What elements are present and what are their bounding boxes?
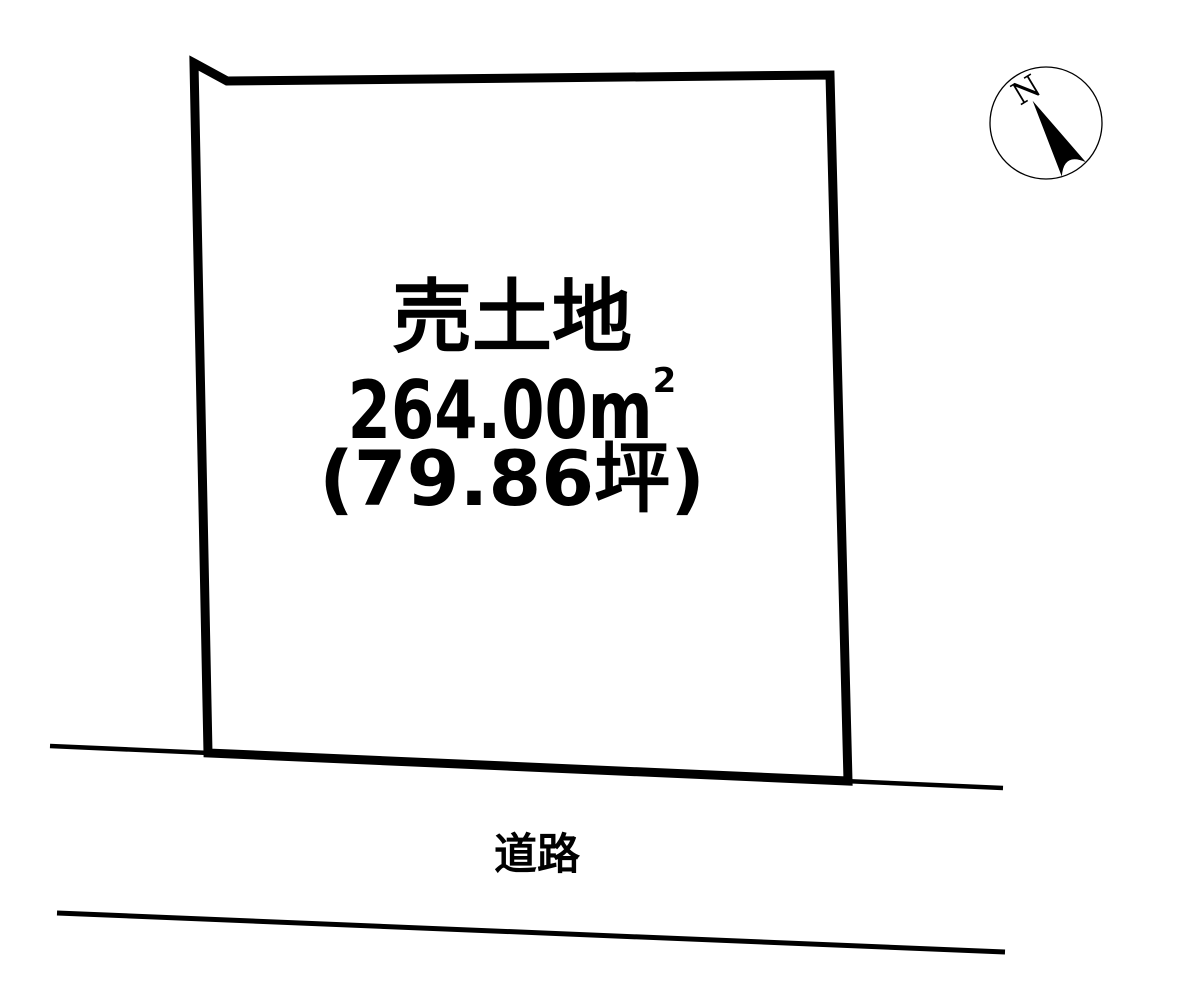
site-plan-canvas: 売土地 264.00m2 (79.86坪) 道路 N: [0, 0, 1182, 1000]
road-lower-boundary-line: [57, 913, 1005, 952]
parcel-title: 売土地: [392, 271, 632, 364]
parcel-area-tsubo: (79.86坪): [319, 434, 705, 523]
compass-icon: N: [990, 67, 1102, 179]
compass-needle-group: N: [1005, 68, 1086, 177]
parcel-area-superscript: 2: [653, 361, 677, 401]
compass-north-label: N: [1006, 68, 1048, 113]
land-plot-diagram: 売土地 264.00m2 (79.86坪) 道路 N: [0, 0, 1182, 1000]
road-label: 道路: [494, 830, 581, 880]
